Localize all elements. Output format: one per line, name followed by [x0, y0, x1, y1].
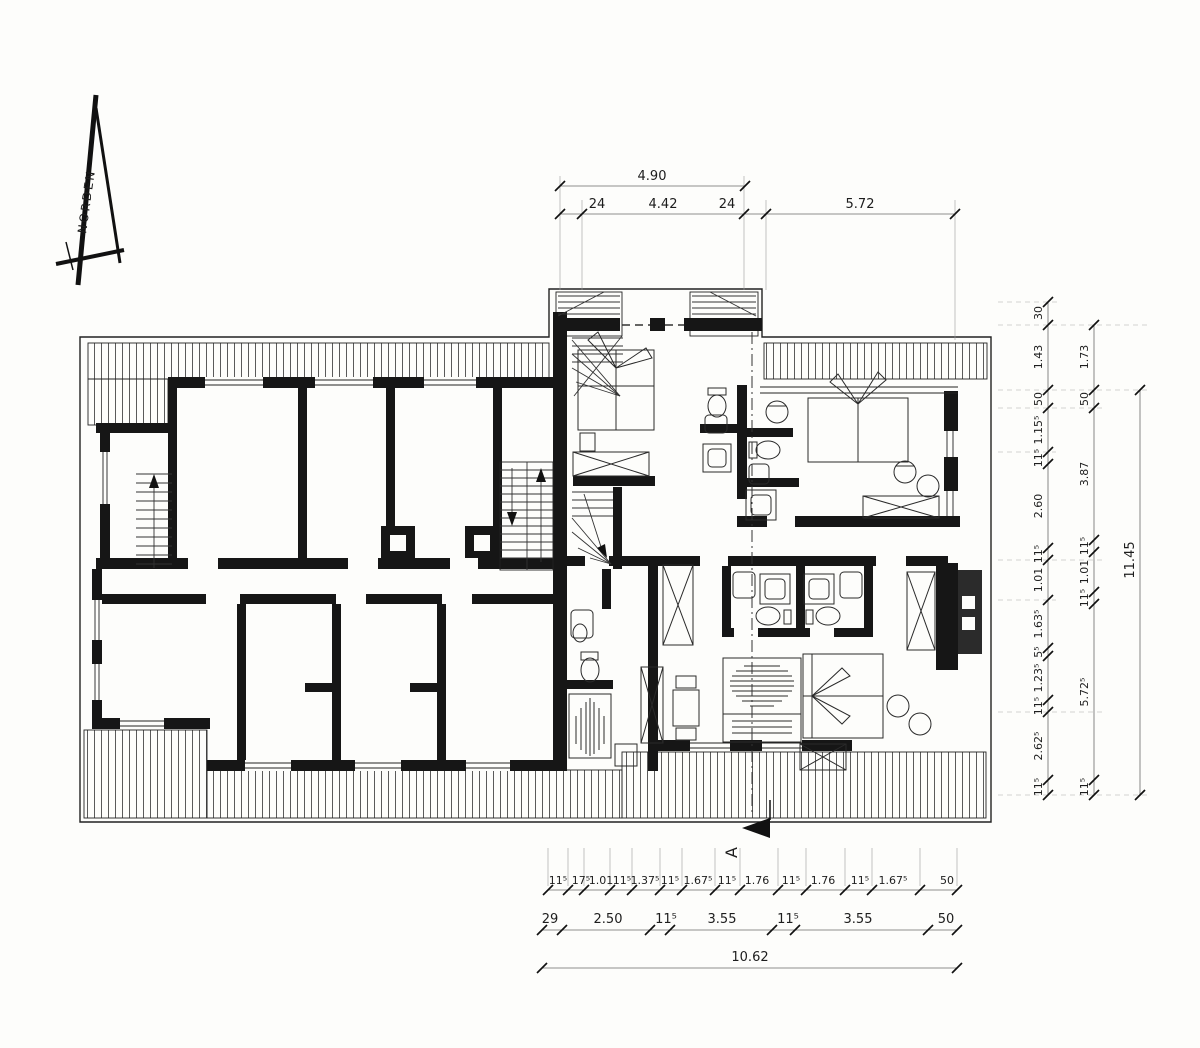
- dim-label: 1.76: [745, 874, 770, 887]
- bed-double-lower: [803, 654, 883, 738]
- dim-label: 5.72: [846, 197, 875, 212]
- dim-label: 1.01: [1032, 568, 1045, 593]
- dim-label: 3.55: [844, 912, 873, 927]
- dim-label: 29: [542, 912, 559, 927]
- dim-label: 1.73: [1078, 345, 1091, 370]
- dim-label: 5.72⁵: [1078, 678, 1091, 707]
- table-and-chairs: [673, 676, 699, 740]
- wardrobe-by-kitchen: [907, 572, 935, 650]
- dim-label: 1.23⁵: [1032, 664, 1045, 693]
- dim-chain-bottom: 11⁵ 17⁵ 1.01 11⁵ 1.37⁵ 11⁵ 1.67⁵ 11⁵ 1.7…: [537, 848, 962, 973]
- bath-lower-2: [804, 572, 862, 625]
- side-table: [580, 433, 595, 451]
- dim-label: 11⁵: [777, 912, 799, 927]
- dim-label: 5⁵: [1032, 646, 1045, 657]
- dim-label: 1.01: [1078, 560, 1091, 585]
- furniture: [573, 332, 975, 770]
- dim-label: 4.90: [638, 169, 667, 184]
- stair-central: [500, 462, 553, 570]
- dim-label: 1.37⁵: [631, 874, 660, 887]
- dim-label: 17⁵: [572, 874, 590, 887]
- stair-dormer-right: [692, 292, 756, 316]
- north-label: NORDEN: [75, 169, 98, 235]
- dim-label: 4.42: [649, 197, 678, 212]
- dim-label: 11⁵: [1032, 778, 1045, 796]
- dim-label: 30: [1032, 306, 1045, 320]
- armchair-upper-left: [766, 401, 788, 423]
- wardrobe-dormer: [573, 452, 649, 476]
- dim-label: 3.87: [1078, 462, 1091, 487]
- stair-dormer-left: [558, 292, 620, 316]
- dim-label: 11⁵: [718, 874, 736, 887]
- stair-winder-lower: [572, 492, 613, 564]
- dim-label: 1.43: [1032, 345, 1045, 370]
- dim-label: 1.15⁵: [1032, 416, 1045, 445]
- dim-label: 11⁵: [851, 874, 869, 887]
- dim-label: 24: [719, 197, 736, 212]
- north-arrow: NORDEN: [56, 95, 124, 285]
- dim-label: 11⁵: [1078, 537, 1091, 555]
- bath-fixtures: [569, 388, 862, 766]
- bed-double-upper: [808, 372, 908, 462]
- dim-label: 11⁵: [1032, 545, 1045, 563]
- dim-label: 3.55: [708, 912, 737, 927]
- dim-label: 10.62: [731, 950, 768, 965]
- dim-label: 1.63⁵: [1032, 610, 1045, 639]
- wardrobe-upper-right: [863, 496, 939, 518]
- section-arrow: [742, 818, 770, 838]
- armchairs-lower-right: [887, 695, 931, 735]
- stairs: [136, 292, 756, 570]
- dim-label: 1.67⁵: [684, 874, 713, 887]
- dim-label: 11⁵: [549, 874, 567, 887]
- dim-label: 50: [938, 912, 955, 927]
- floor-plan-sheet: NORDEN: [0, 0, 1200, 1048]
- dim-label: 24: [589, 197, 606, 212]
- dim-label: 11⁵: [1032, 449, 1045, 467]
- dim-label: 50: [1078, 392, 1091, 406]
- section-label: A: [722, 847, 741, 858]
- dim-label: 11⁵: [655, 912, 677, 927]
- dim-label: 2.60: [1032, 494, 1045, 519]
- dim-label: 50: [1032, 392, 1045, 406]
- stair-left: [136, 474, 172, 568]
- dim-label: 2.50: [594, 912, 623, 927]
- wardrobe-tall-a: [663, 565, 693, 645]
- dim-chain-right: 30 1.43 50 1.15⁵ 11⁵ 2.60 11⁵ 1.01 1.63⁵…: [998, 297, 1148, 800]
- dim-label: 1.76: [811, 874, 836, 887]
- dim-label: 50: [940, 874, 954, 887]
- dim-label: 11.45: [1123, 541, 1138, 578]
- dim-label: 11⁵: [1078, 589, 1091, 607]
- bath-lower-1: [733, 572, 791, 625]
- dim-label: 2.62⁵: [1032, 732, 1045, 761]
- dim-label: 1.01: [589, 874, 614, 887]
- armchairs-upper-right: [894, 461, 939, 497]
- dim-label: 1.67⁵: [879, 874, 908, 887]
- dim-label: 11⁵: [1078, 778, 1091, 796]
- dim-label: 11⁵: [661, 874, 679, 887]
- dim-label: 11⁵: [613, 874, 631, 887]
- bed-dormer: [578, 332, 654, 430]
- bed-single-striped: [723, 658, 801, 742]
- floor-plan-drawing: NORDEN: [0, 0, 1200, 1048]
- dim-label: 11⁵: [1032, 697, 1045, 715]
- dim-label: 11⁵: [782, 874, 800, 887]
